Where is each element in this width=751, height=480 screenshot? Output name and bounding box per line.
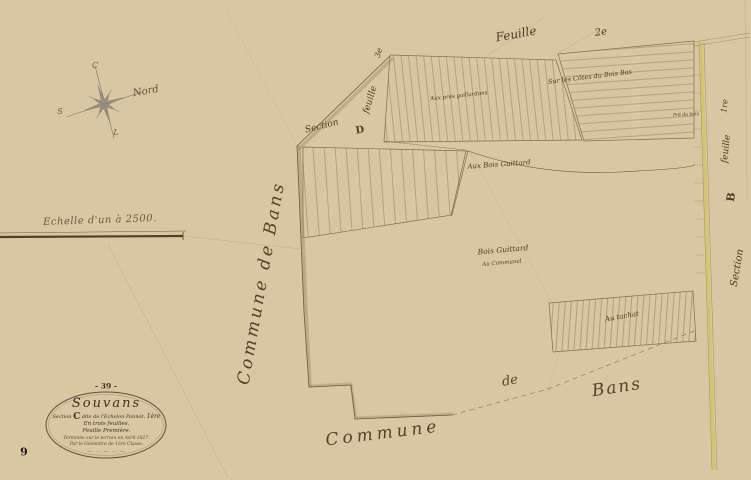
strips-middle [303, 147, 468, 238]
compass-star [85, 85, 123, 123]
adjacent-sheet-top-number: 2e [594, 27, 608, 39]
cartouche-section-prefix: Section [52, 414, 71, 420]
plate-number: - 39 - [95, 382, 117, 390]
adjacent-section-west-letter: D [355, 125, 365, 136]
page-number-stamp: 9 [20, 447, 28, 458]
cartouche-sheets-line: En trois feuilles. [44, 422, 169, 428]
commune-bottom-word-2: de [501, 373, 519, 389]
compass-letter-levant: L [113, 129, 118, 137]
compass-letter-sud: S [57, 108, 62, 116]
cartouche-section-sheet: 1ère [147, 413, 161, 420]
cartouche-surveyor-line: Par le Géomètre de 1ère Classe. [44, 443, 169, 448]
cartouche-sheet-line: Feuille Première. [44, 429, 169, 435]
scale-bar [0, 231, 186, 240]
strips-north-west [384, 55, 582, 142]
cartouche-survey-line: Terminée sur le terrain en Avril 1827. [44, 437, 169, 442]
cartouche-section-name: dite de l'Echelon Pannot. [82, 414, 145, 420]
compass-rose [66, 66, 142, 138]
strips-north-east [558, 41, 694, 141]
adjacent-sheet-east-number: 1re [720, 99, 729, 113]
strips-south-east [549, 291, 696, 352]
cartouche-title: Souvans [44, 397, 169, 410]
paper-fold-line [745, 0, 747, 200]
cartouche-section-letter: C [73, 412, 80, 422]
title-cartouche: Souvans Section C dite de l'Echelon Pann… [44, 390, 169, 460]
adjacent-section-east-letter: B [725, 192, 737, 203]
cadastral-map-sheet: Nord C S L Echelle d'un à 2500. Commune … [0, 0, 751, 480]
compass-letter-couchant: C [92, 62, 98, 70]
cartouche-flourish: — ·· — ·· — [44, 450, 169, 455]
